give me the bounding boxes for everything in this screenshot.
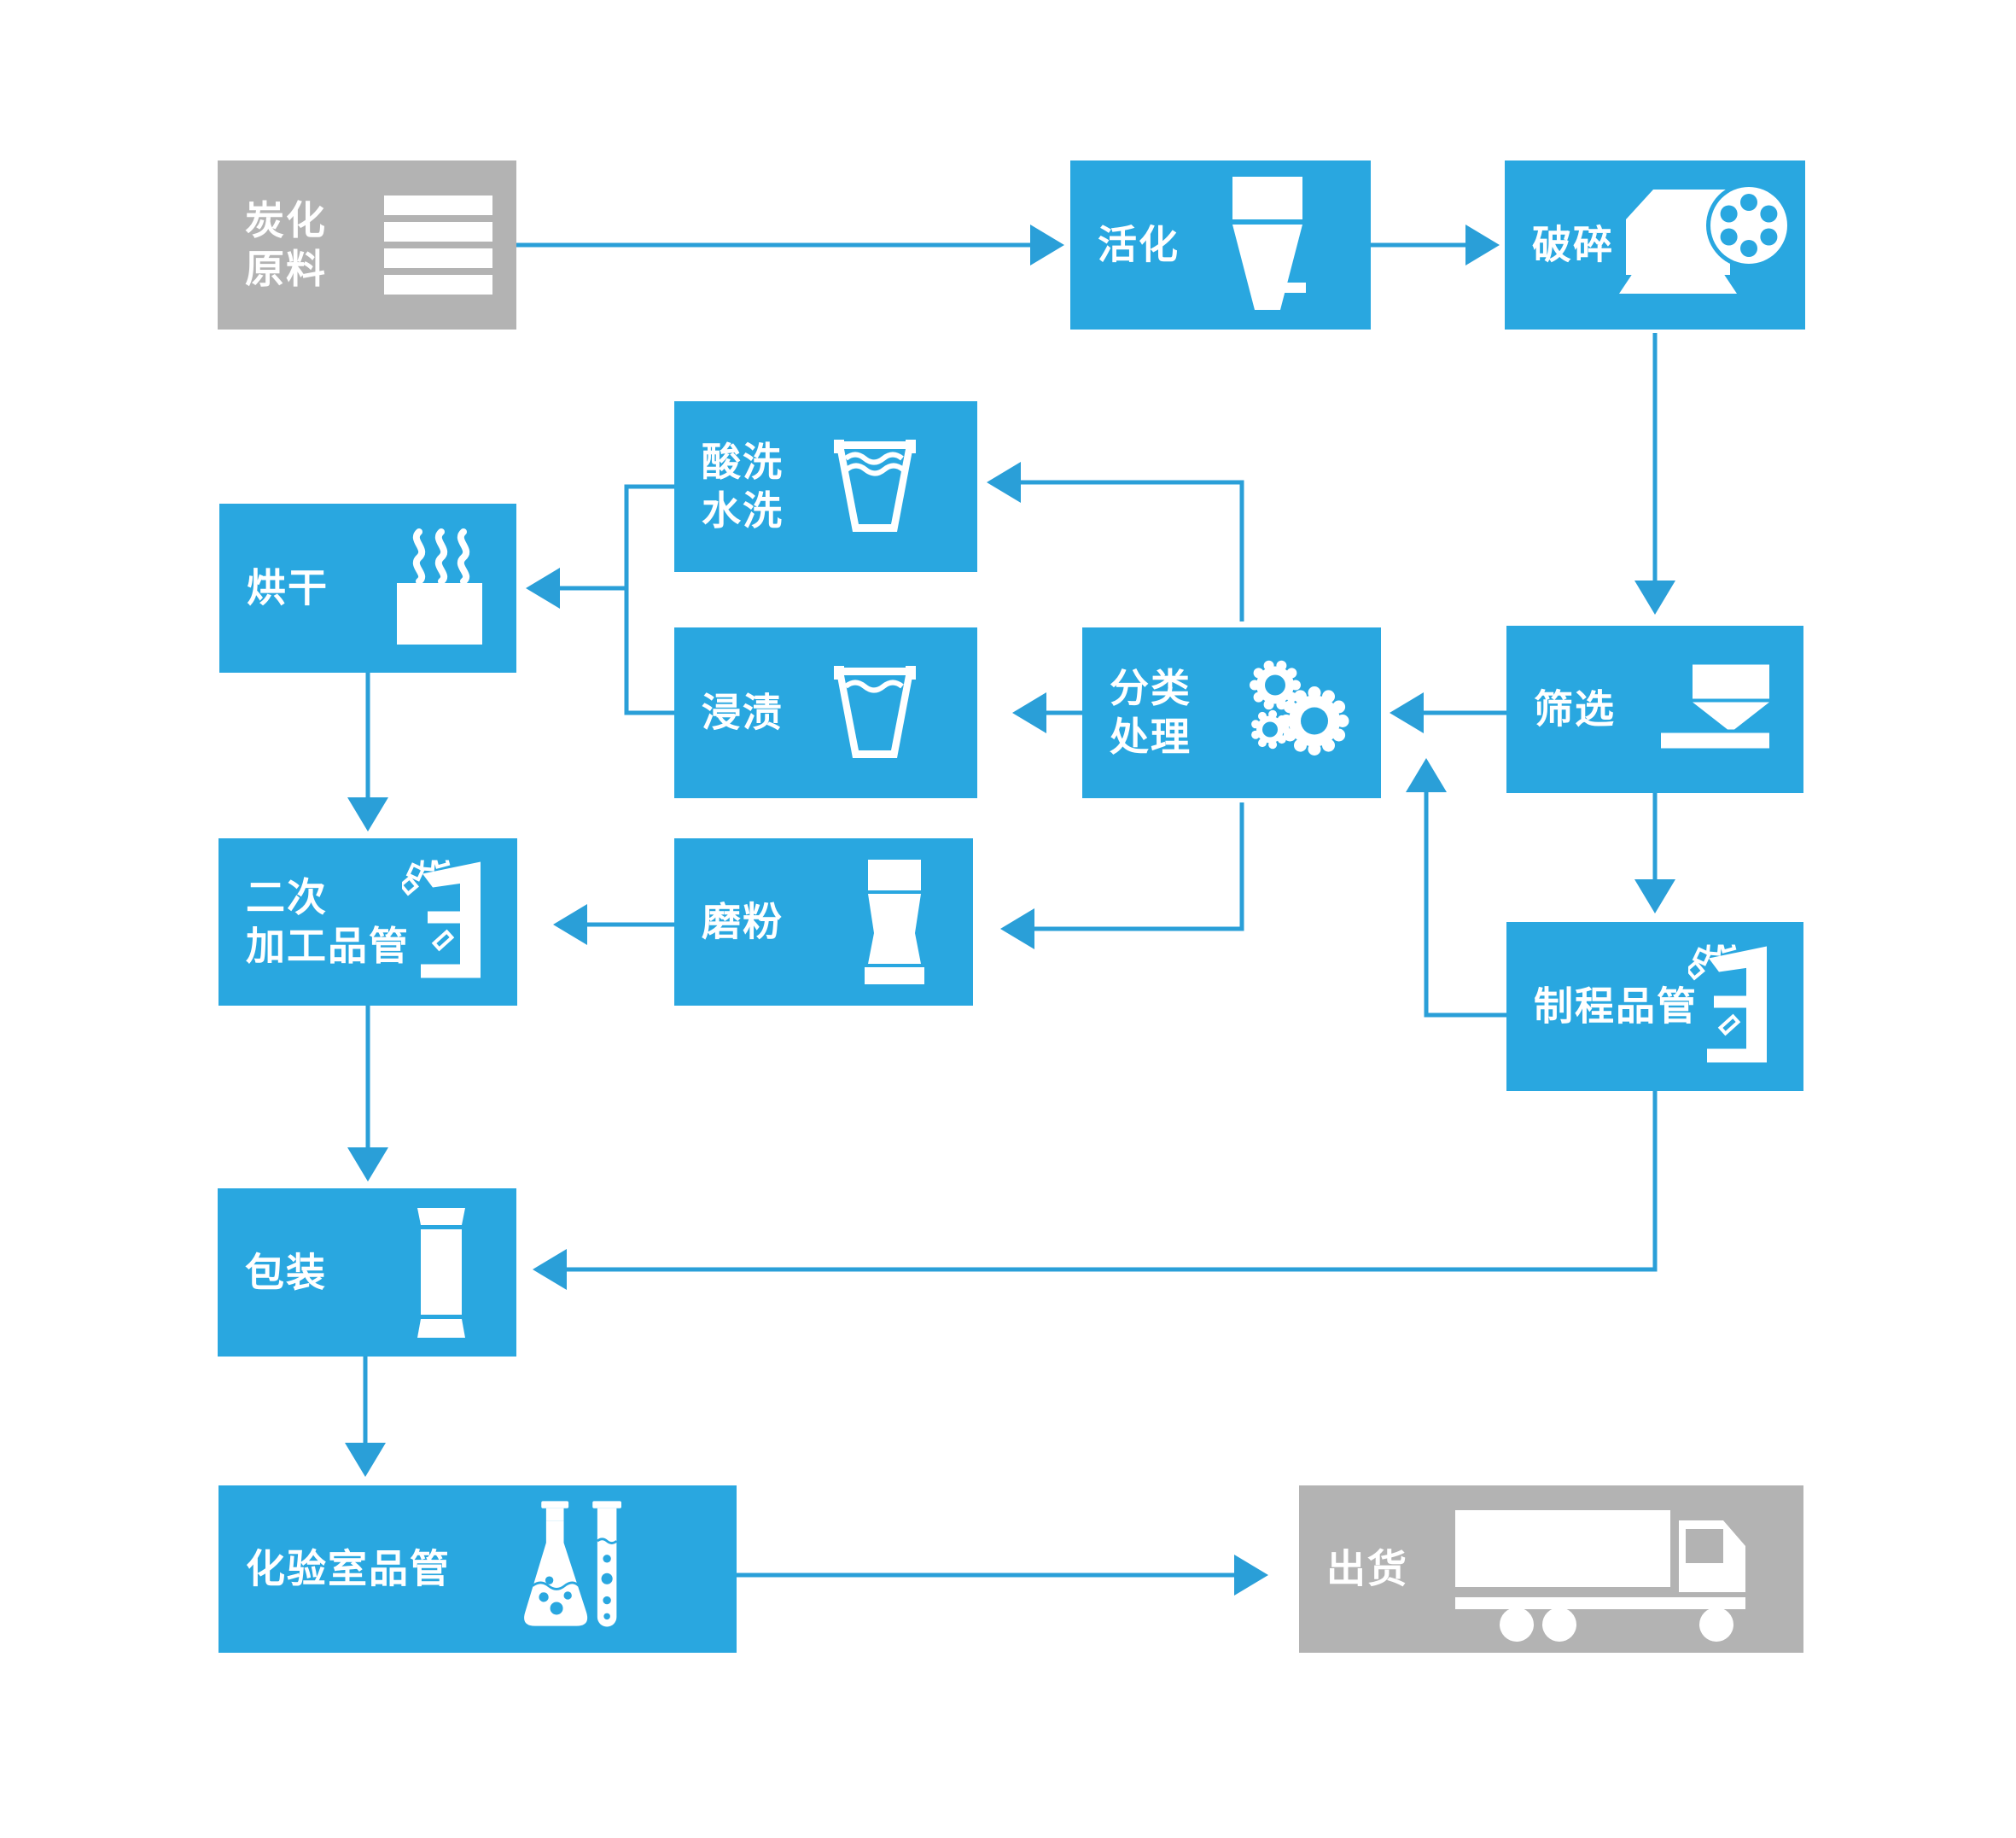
edge-crushing-to-screening bbox=[1634, 333, 1675, 615]
microscope-icon bbox=[1688, 945, 1774, 1069]
node-screening-label: 筛选 bbox=[1534, 685, 1616, 733]
node-classification: 分类 处理 bbox=[1082, 627, 1381, 798]
steam-dryer-icon bbox=[388, 528, 491, 648]
edge-classification-to-grinding bbox=[1000, 802, 1242, 949]
kiln-icon bbox=[1229, 177, 1308, 313]
edge-classification-to-impregnation bbox=[1012, 692, 1082, 733]
node-grinding-label: 磨粉 bbox=[702, 897, 784, 946]
edge-grinding-to-secondary-qc bbox=[553, 904, 674, 945]
node-acid-wash: 酸洗 水洗 bbox=[674, 401, 977, 572]
node-shipping-label: 出货 bbox=[1326, 1544, 1408, 1593]
edge-secondary-qc-to-packing bbox=[347, 1006, 388, 1182]
node-classification-label: 分类 处理 bbox=[1110, 664, 1192, 761]
node-drying: 烘干 bbox=[219, 504, 516, 673]
node-grinding: 磨粉 bbox=[674, 838, 973, 1006]
edge-screening-to-process-qc bbox=[1634, 792, 1675, 913]
process-flow-diagram: 炭化 原料 活化 破碎 bbox=[0, 0, 2016, 1838]
node-process-qc: 制程品管 bbox=[1506, 922, 1803, 1091]
node-raw-material: 炭化 原料 bbox=[218, 160, 516, 330]
node-lab-qc: 化验室品管 bbox=[218, 1485, 737, 1653]
grinder-icon bbox=[863, 860, 926, 984]
node-activation: 活化 bbox=[1070, 160, 1371, 330]
node-shipping: 出货 bbox=[1299, 1485, 1803, 1653]
edge-screening-to-classification bbox=[1390, 692, 1506, 733]
node-screening: 筛选 bbox=[1506, 626, 1803, 793]
edge-packing-to-lab-qc bbox=[345, 1357, 386, 1477]
edge-classification-to-acid-wash bbox=[987, 462, 1242, 621]
soak-glass-icon bbox=[832, 666, 918, 760]
wash-glass-icon bbox=[832, 440, 918, 534]
crusher-icon bbox=[1619, 181, 1790, 309]
flask-tube-icon bbox=[506, 1499, 634, 1640]
edge-lab-qc-to-shipping bbox=[737, 1555, 1268, 1596]
node-packing: 包装 bbox=[218, 1188, 516, 1357]
node-activation-label: 活化 bbox=[1098, 220, 1180, 269]
node-impregnation-label: 浸渍 bbox=[702, 688, 784, 737]
layers-icon bbox=[384, 195, 492, 295]
edge-process-qc-to-classification bbox=[1406, 758, 1506, 1015]
edge-activation-to-crushing bbox=[1371, 225, 1500, 265]
node-raw-material-label: 炭化 原料 bbox=[245, 196, 327, 294]
node-impregnation: 浸渍 bbox=[674, 627, 977, 798]
truck-icon bbox=[1455, 1497, 1780, 1642]
edge-wash-soak-to-drying bbox=[526, 487, 674, 713]
hopper-icon bbox=[1654, 665, 1782, 755]
gears-icon bbox=[1244, 660, 1351, 767]
package-icon bbox=[407, 1208, 475, 1338]
node-crushing: 破碎 bbox=[1505, 160, 1805, 330]
edge-drying-to-secondary-qc bbox=[347, 672, 388, 831]
node-lab-qc-label: 化验室品管 bbox=[246, 1544, 451, 1593]
node-drying-label: 烘干 bbox=[247, 563, 329, 612]
microscope-icon bbox=[402, 861, 487, 984]
edge-raw-to-activation bbox=[516, 225, 1064, 265]
node-crushing-label: 破碎 bbox=[1532, 220, 1614, 269]
node-secondary-qc-label: 二次 加工品管 bbox=[246, 873, 410, 971]
node-packing-label: 包装 bbox=[245, 1248, 327, 1297]
node-process-qc-label: 制程品管 bbox=[1534, 982, 1698, 1030]
edge-process-qc-to-packing bbox=[533, 1091, 1655, 1290]
node-secondary-qc: 二次 加工品管 bbox=[218, 838, 517, 1006]
node-acid-wash-label: 酸洗 水洗 bbox=[702, 438, 784, 535]
